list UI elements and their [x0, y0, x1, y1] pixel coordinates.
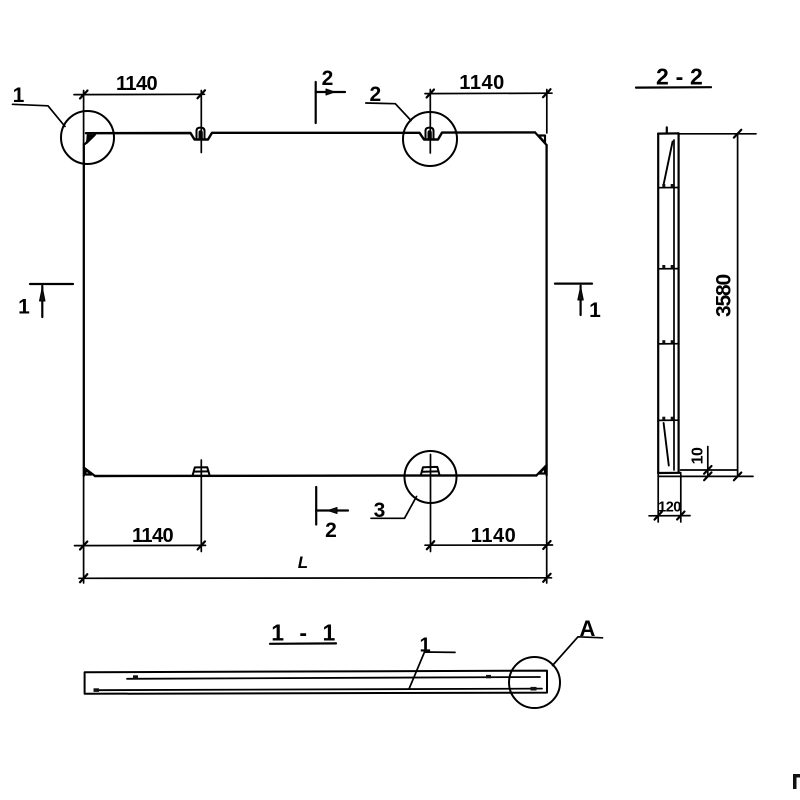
svg-text:1: 1 — [589, 299, 601, 322]
svg-text:1: 1 — [13, 84, 25, 107]
svg-text:1140: 1140 — [132, 525, 173, 547]
svg-text:1 - 1: 1 - 1 — [271, 620, 340, 646]
svg-text:1: 1 — [18, 296, 30, 319]
svg-text:120: 120 — [658, 500, 681, 516]
svg-text:10: 10 — [690, 447, 707, 464]
svg-text:2 - 2: 2 - 2 — [656, 64, 703, 90]
svg-text:1: 1 — [419, 635, 430, 657]
svg-text:A: A — [580, 616, 596, 641]
svg-text:1140: 1140 — [459, 72, 504, 94]
svg-text:3580: 3580 — [713, 275, 736, 317]
svg-text:1140: 1140 — [471, 525, 516, 547]
svg-text:3: 3 — [374, 499, 386, 522]
svg-text:2: 2 — [369, 83, 381, 106]
svg-text:1140: 1140 — [116, 73, 157, 95]
svg-text:L: L — [298, 553, 308, 572]
svg-text:2: 2 — [322, 67, 334, 90]
svg-text:2: 2 — [325, 519, 337, 542]
